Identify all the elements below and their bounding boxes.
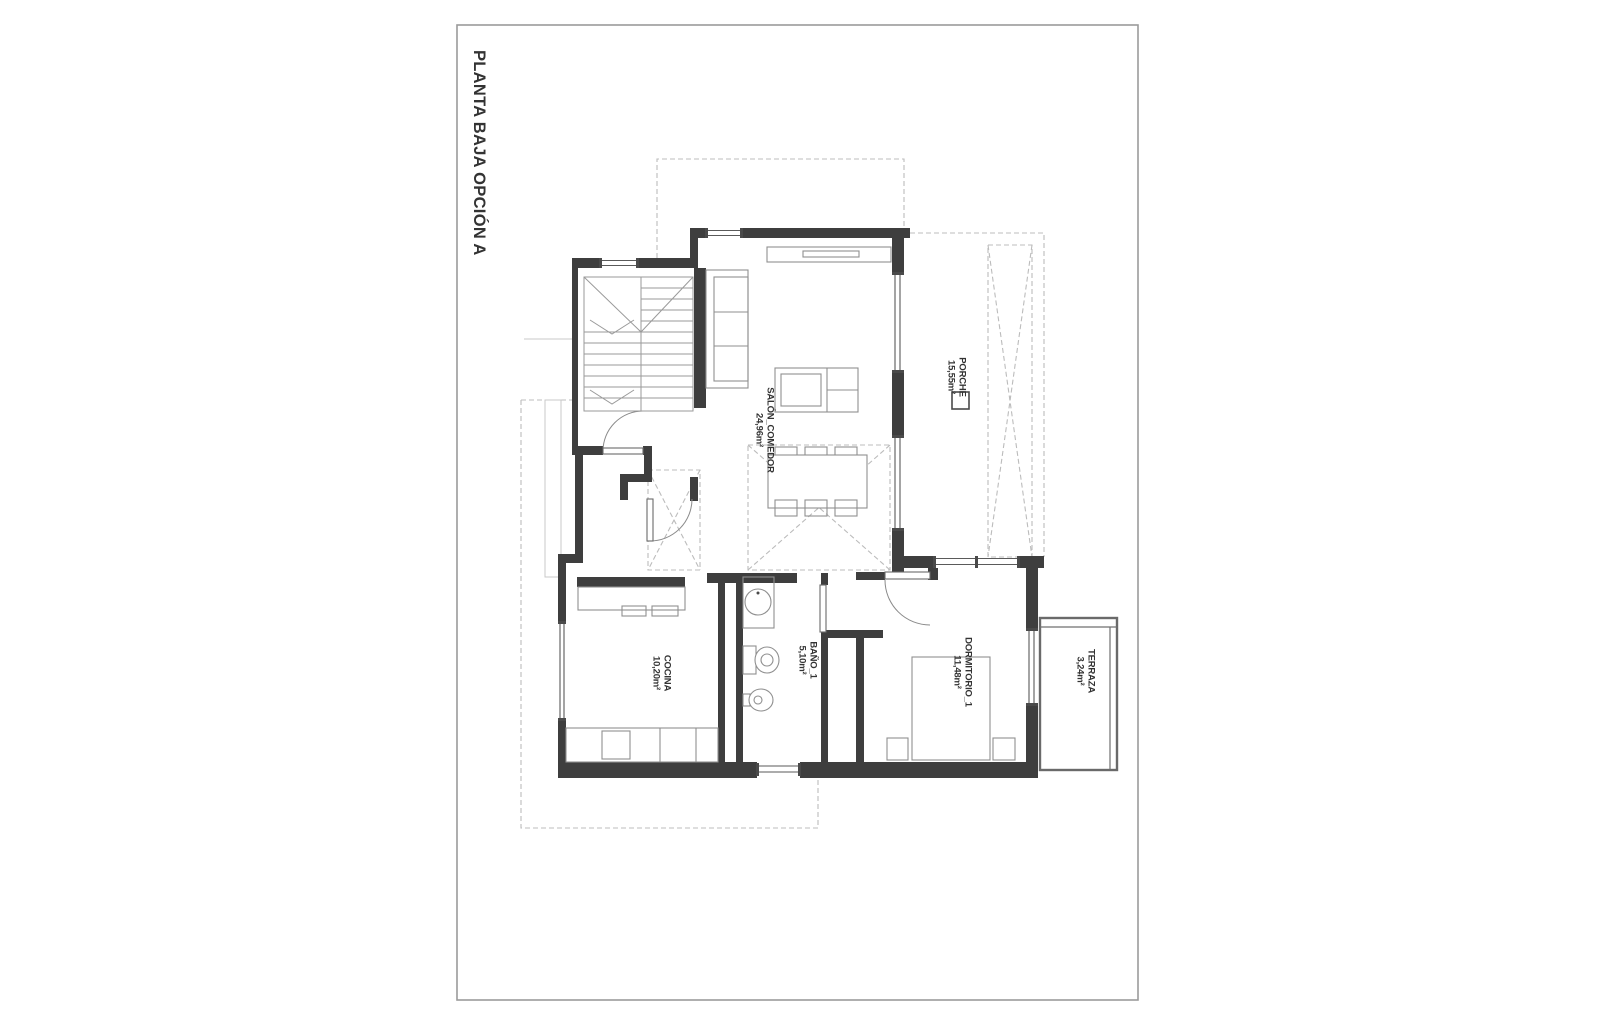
page-title: PLANTA BAJA OPCIÓN A — [470, 50, 489, 256]
dining-table-set — [768, 447, 867, 516]
window-salon-east-2 — [892, 435, 904, 531]
toilet — [743, 646, 779, 674]
room-name-dormitorio: DORMITORIO_1 — [963, 637, 974, 708]
nightstand-right — [993, 738, 1015, 760]
room-area-salon: 24,96m² — [754, 413, 765, 447]
room-area-bano: 5,10m² — [797, 646, 808, 675]
nightstand-left — [887, 738, 908, 760]
room-name-porche: PORCHE — [957, 357, 968, 396]
staircase — [584, 277, 693, 411]
room-name-terraza: TERRAZA — [1086, 649, 1097, 693]
room-name-cocina: COCINA — [662, 655, 673, 692]
door-understair — [603, 411, 643, 454]
door-bano — [820, 585, 826, 632]
window-salon-top — [705, 228, 743, 238]
floor-plan-drawing: PLANTA BAJA OPCIÓN A — [0, 0, 1600, 1024]
kitchen-counter-bottom — [566, 728, 718, 762]
label-terraza: TERRAZA 3,24m² — [1075, 649, 1097, 693]
room-name-bano: BAÑO_1 — [808, 641, 819, 679]
room-area-cocina: 10,20m² — [651, 656, 662, 690]
kitchen-counter-top — [578, 587, 685, 616]
window-cocina-west — [558, 621, 566, 721]
window-stair-top — [599, 258, 639, 268]
label-bano: BAÑO_1 5,10m² — [797, 641, 819, 679]
label-salon-comedor: SALÓN_COMEDOR 24,96m² — [754, 387, 777, 473]
terraza-parapet — [1040, 618, 1117, 770]
bathroom-sink — [743, 577, 774, 628]
floor-plan-page: PLANTA BAJA OPCIÓN A — [0, 0, 1600, 1024]
door-hall — [647, 499, 692, 541]
bed — [912, 657, 990, 760]
door-dormitorio — [885, 572, 930, 625]
room-area-terraza: 3,24m² — [1075, 657, 1086, 686]
label-dormitorio: DORMITORIO_1 11,48m² — [952, 637, 974, 708]
label-cocina: COCINA 10,20m² — [651, 655, 673, 692]
porch-roof-cross-dashed — [988, 245, 1032, 557]
room-name-salon: SALÓN_COMEDOR — [765, 387, 777, 473]
window-salon-east-1 — [892, 272, 904, 373]
bidet — [743, 689, 773, 711]
coffee-table — [775, 368, 858, 412]
room-area-dormitorio: 11,48m² — [952, 655, 963, 688]
window-bano-south — [756, 763, 801, 776]
sofa — [706, 270, 748, 388]
window-dormitorio-north — [933, 556, 1020, 568]
tv-sideboard — [767, 247, 891, 262]
room-area-porche: 15,55m² — [946, 360, 957, 394]
window-dormitorio-east — [1026, 628, 1038, 706]
label-porche: PORCHE 15,55m² — [946, 357, 968, 396]
